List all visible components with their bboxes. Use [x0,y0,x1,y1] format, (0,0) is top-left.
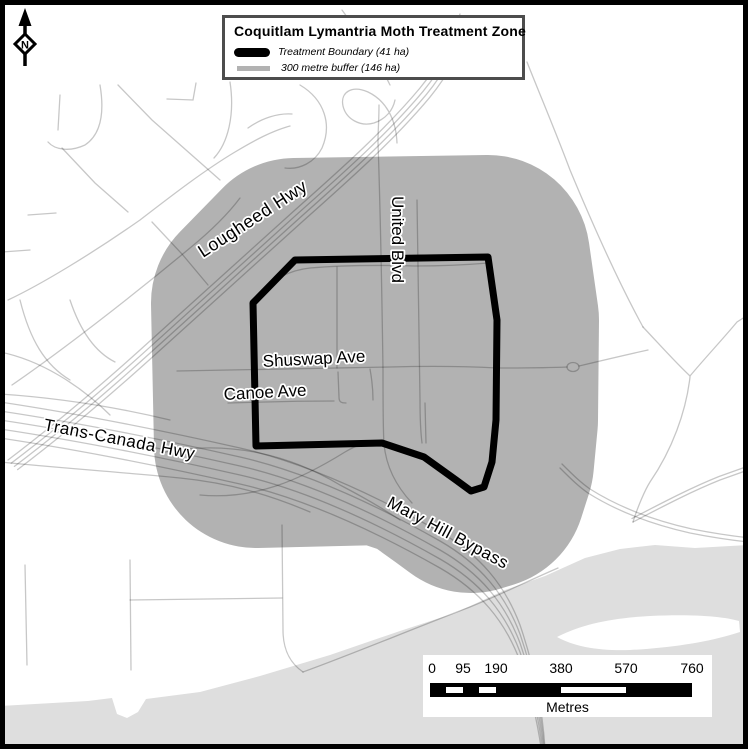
map-canvas: Lougheed Hwy United Blvd Shuswap Ave Can… [0,0,748,749]
scale-bar-rule [430,683,692,697]
scale-tick: 190 [484,660,507,676]
title-legend-box: Coquitlam Lymantria Moth Treatment Zone … [222,15,525,80]
scale-bar-segment [561,687,626,693]
scale-tick: 760 [680,660,703,676]
scale-bar-unit: Metres [423,699,712,715]
north-arrow-icon: N [8,6,44,70]
scale-tick: 570 [614,660,637,676]
legend-label: Treatment Boundary (41 ha) [278,46,409,58]
treatment-boundary-swatch [234,48,270,57]
scale-bar: 0 95 190 380 570 760 Metres [423,655,712,717]
legend-item-buffer: 300 metre buffer (146 ha) [234,60,514,76]
river-polygon [0,545,748,749]
scale-tick: 380 [549,660,572,676]
legend-item-treatment-boundary: Treatment Boundary (41 ha) [234,44,514,60]
north-letter: N [21,40,29,52]
legend-label: 300 metre buffer (146 ha) [281,62,400,74]
scale-tick: 0 [428,660,436,676]
scale-bar-segment [446,687,463,693]
map-title: Coquitlam Lymantria Moth Treatment Zone [234,23,514,39]
scale-tick: 95 [455,660,471,676]
buffer-swatch [237,66,270,71]
label-united-blvd: United Blvd [388,196,407,283]
map-layers: Lougheed Hwy United Blvd Shuswap Ave Can… [0,0,748,749]
scale-bar-segment [479,687,496,693]
buffer-zone [253,257,497,491]
